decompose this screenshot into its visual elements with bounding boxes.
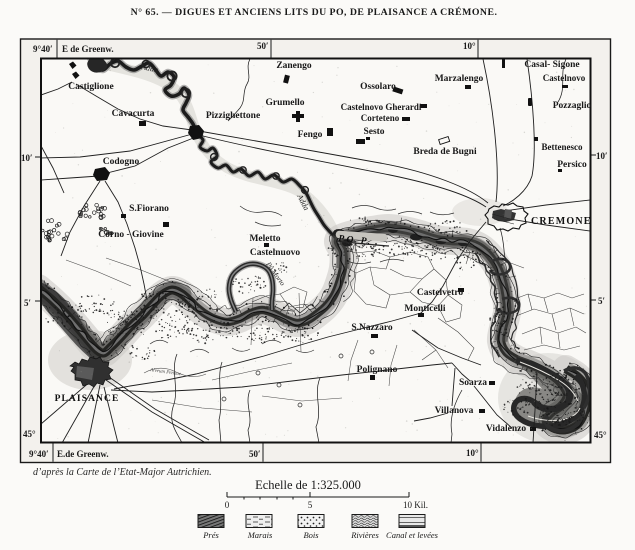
svg-text:N° 65. — DIGUES ET ANCIENS LIT: N° 65. — DIGUES ET ANCIENS LITS DU PO, D… bbox=[131, 6, 498, 18]
svg-text:Echelle de 1:325.000: Echelle de 1:325.000 bbox=[255, 478, 361, 492]
svg-text:5′: 5′ bbox=[24, 298, 31, 308]
svg-text:0: 0 bbox=[225, 500, 230, 510]
svg-text:45°: 45° bbox=[23, 429, 36, 439]
svg-text:Soarza: Soarza bbox=[459, 378, 487, 388]
svg-text:Persico: Persico bbox=[557, 160, 587, 170]
svg-text:Breda de Bugni: Breda de Bugni bbox=[413, 147, 477, 157]
svg-text:Polignano: Polignano bbox=[357, 365, 398, 375]
svg-text:S.Fiorano: S.Fiorano bbox=[129, 204, 169, 214]
svg-text:Prés: Prés bbox=[202, 530, 219, 540]
svg-text:50′: 50′ bbox=[257, 41, 269, 51]
svg-text:Grumello: Grumello bbox=[265, 98, 304, 108]
svg-text:Cavacurta: Cavacurta bbox=[112, 109, 155, 119]
svg-text:Codogno: Codogno bbox=[103, 157, 140, 167]
svg-text:9°40′: 9°40′ bbox=[29, 449, 49, 459]
svg-text:10′: 10′ bbox=[21, 153, 33, 163]
svg-text:Castiglione: Castiglione bbox=[68, 82, 113, 92]
svg-text:Ossolaro: Ossolaro bbox=[360, 82, 396, 92]
svg-text:S.Nazzaro: S.Nazzaro bbox=[351, 323, 392, 333]
svg-text:Castelvetro: Castelvetro bbox=[417, 288, 464, 298]
svg-text:E.de Greenw.: E.de Greenw. bbox=[57, 449, 109, 459]
svg-text:Castelnovo Gherardi: Castelnovo Gherardi bbox=[341, 102, 422, 112]
svg-text:Zanengo: Zanengo bbox=[276, 61, 312, 71]
svg-text:PLAISANCE: PLAISANCE bbox=[55, 394, 120, 404]
svg-text:d’après la Carte de l’Etat-Maj: d’après la Carte de l’Etat-Major Autrich… bbox=[33, 467, 212, 478]
svg-text:Marzalengo: Marzalengo bbox=[435, 74, 484, 84]
svg-text:5′: 5′ bbox=[598, 296, 605, 306]
svg-text:Corno - Giovine: Corno - Giovine bbox=[98, 230, 163, 240]
svg-text:45°: 45° bbox=[594, 430, 607, 440]
svg-text:50′: 50′ bbox=[249, 449, 261, 459]
svg-text:5: 5 bbox=[308, 500, 313, 510]
svg-text:Vidalenzo: Vidalenzo bbox=[486, 424, 527, 434]
svg-text:Marais: Marais bbox=[247, 530, 273, 540]
svg-text:E de Greenw.: E de Greenw. bbox=[62, 44, 114, 54]
svg-text:10 Kil.: 10 Kil. bbox=[403, 500, 428, 510]
svg-text:Pozzaglio: Pozzaglio bbox=[553, 101, 592, 111]
svg-text:10°: 10° bbox=[463, 41, 476, 51]
svg-text:Fengo: Fengo bbox=[298, 130, 323, 140]
svg-text:10°: 10° bbox=[466, 448, 479, 458]
svg-text:Bettenesco: Bettenesco bbox=[542, 142, 583, 152]
svg-text:Rivières: Rivières bbox=[350, 530, 379, 540]
svg-text:Sesto: Sesto bbox=[363, 127, 384, 137]
svg-text:Villanova: Villanova bbox=[435, 406, 474, 416]
svg-text:Monticelli: Monticelli bbox=[404, 304, 446, 314]
svg-text:Bois: Bois bbox=[303, 530, 319, 540]
svg-text:Casal- Sigone: Casal- Sigone bbox=[524, 60, 579, 70]
svg-text:CREMONE: CREMONE bbox=[531, 216, 592, 227]
svg-text:Castelnuovo: Castelnuovo bbox=[250, 248, 300, 258]
svg-text:9°40′: 9°40′ bbox=[33, 44, 53, 54]
svg-text:Meletto: Meletto bbox=[249, 234, 280, 244]
svg-text:Canal et levées: Canal et levées bbox=[386, 530, 439, 540]
svg-text:Castelnovo: Castelnovo bbox=[543, 73, 586, 83]
svg-text:Pizzighettone: Pizzighettone bbox=[206, 111, 260, 121]
svg-text:10′: 10′ bbox=[596, 151, 608, 161]
svg-text:Corteteno: Corteteno bbox=[361, 113, 400, 123]
